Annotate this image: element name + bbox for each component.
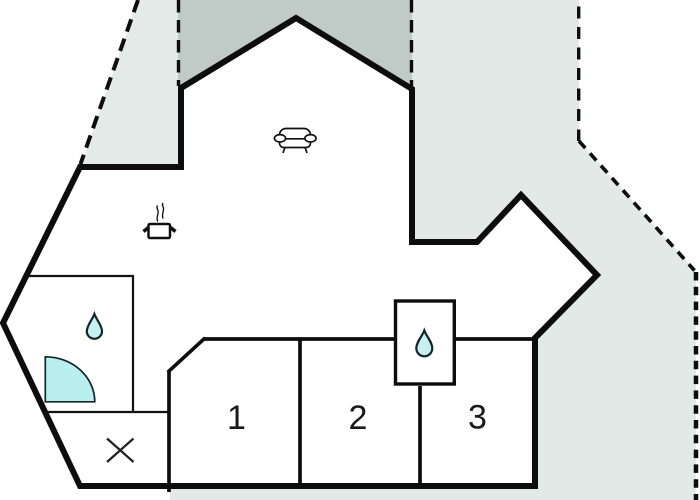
svg-text:3: 3 bbox=[468, 399, 487, 437]
svg-text:2: 2 bbox=[349, 399, 368, 437]
svg-text:1: 1 bbox=[227, 399, 246, 437]
